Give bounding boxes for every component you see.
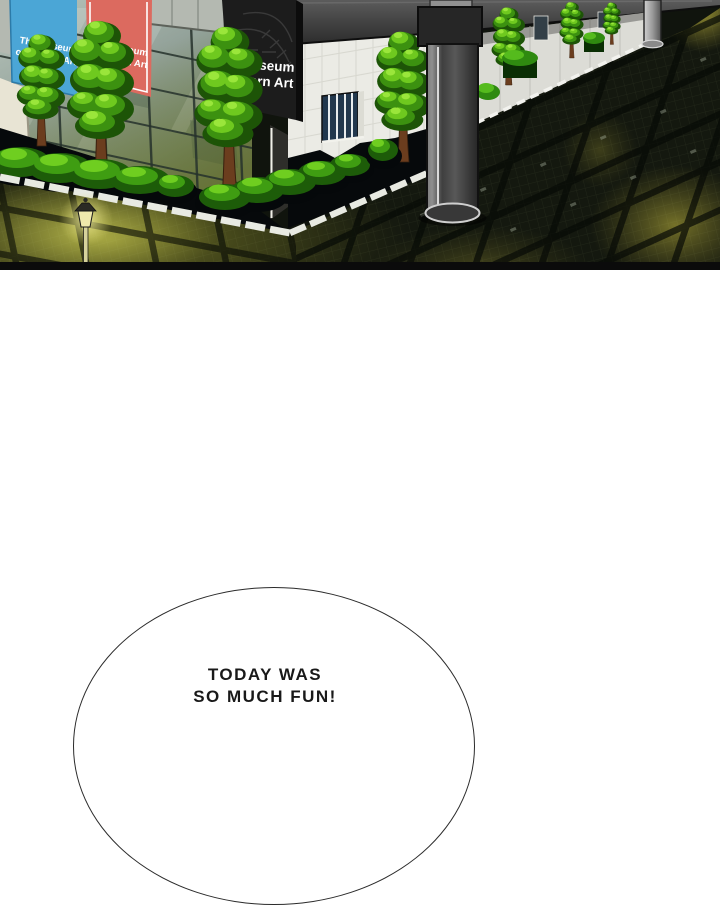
comic-panel: The Museum of Modern Art The Museum of M… — [0, 0, 720, 270]
barred-window — [322, 91, 364, 142]
speech-line-1: TODAY WAS — [145, 664, 385, 686]
museum-night-scene: The Museum of Modern Art The Museum of M… — [0, 0, 720, 270]
speech-bubble — [73, 587, 475, 905]
speech-line-2: SO MUCH FUN! — [145, 686, 385, 708]
column-large — [418, 0, 487, 226]
panel-bottom-border — [0, 262, 720, 270]
column-small — [642, 0, 663, 48]
comic-page: The Museum of Modern Art The Museum of M… — [0, 0, 720, 700]
speech-bubble-text: TODAY WAS SO MUCH FUN! — [145, 664, 385, 708]
